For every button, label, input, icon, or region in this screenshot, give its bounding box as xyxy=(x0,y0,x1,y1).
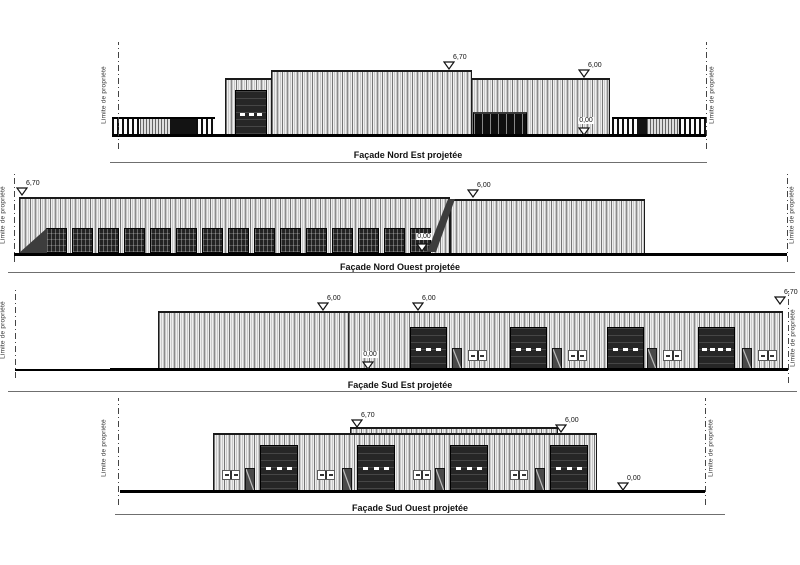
garage-door-window-dashes xyxy=(358,467,394,470)
window-pane xyxy=(414,471,421,479)
garage-door xyxy=(550,445,588,491)
window xyxy=(413,470,431,480)
window xyxy=(510,470,528,480)
personnel-door xyxy=(535,468,545,492)
level-triangle-icon xyxy=(555,424,567,433)
property-limit-line xyxy=(705,398,706,505)
garage-door-window-dashes xyxy=(451,467,487,470)
window-pane xyxy=(518,471,527,479)
garage-door xyxy=(260,445,298,491)
title-underline xyxy=(115,514,725,515)
level-triangle-icon xyxy=(351,419,363,428)
garage-door xyxy=(357,445,395,491)
drawing-canvas: Limite de propriétéLimite de propriété6,… xyxy=(0,0,800,565)
property-limit-line xyxy=(118,398,119,505)
elevation-facade-sud-ouest: Limite de propriétéLimite de propriété6,… xyxy=(0,0,800,565)
personnel-door xyxy=(342,468,352,492)
personnel-door xyxy=(245,468,255,492)
window xyxy=(317,470,335,480)
property-limit-label: Limite de propriété xyxy=(708,419,715,477)
level-marker-label: 6,00 xyxy=(565,417,579,424)
level-marker-label: 6,70 xyxy=(361,412,375,419)
window-pane xyxy=(223,471,230,479)
window-pane xyxy=(511,471,518,479)
window-pane xyxy=(230,471,239,479)
garage-door xyxy=(450,445,488,491)
garage-door-window-dashes xyxy=(551,467,587,470)
garage-door-window-dashes xyxy=(261,467,297,470)
level-marker-label: 0,00 xyxy=(627,475,641,482)
elevation-title: Façade Sud Ouest projetée xyxy=(352,503,468,513)
window-pane xyxy=(325,471,334,479)
personnel-door xyxy=(435,468,445,492)
window-pane xyxy=(421,471,430,479)
window xyxy=(222,470,240,480)
level-triangle-icon xyxy=(617,482,629,491)
property-limit-label: Limite de propriété xyxy=(101,419,108,477)
window-pane xyxy=(318,471,325,479)
